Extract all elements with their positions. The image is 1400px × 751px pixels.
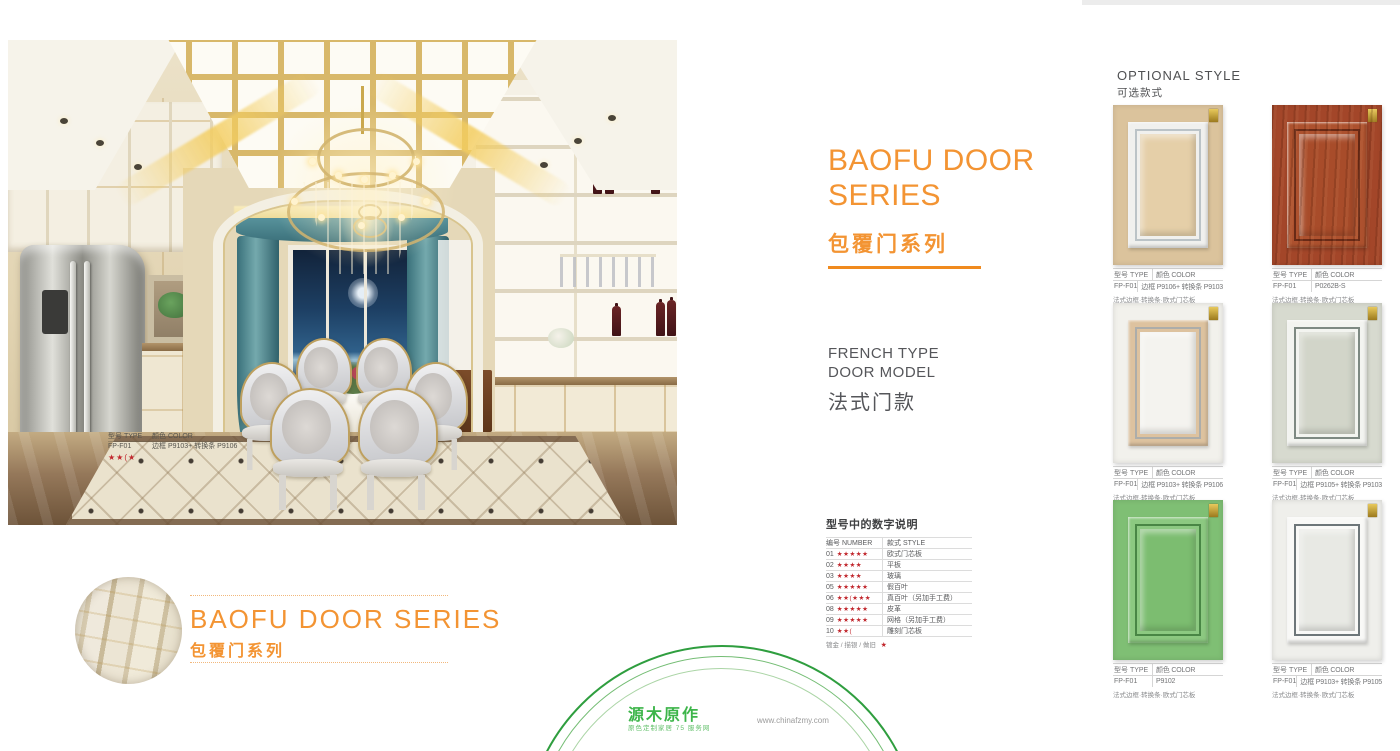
fridge-dispenser xyxy=(42,290,68,334)
door-style-card: 型号 TYPE 颜色 COLOR FP-F01 P0262B-S 法式边框·转换… xyxy=(1272,105,1382,304)
spotlight xyxy=(608,115,616,121)
spec-model: FP-F01 xyxy=(1113,479,1138,490)
spotlight xyxy=(574,138,582,144)
legend-stars: ★★★★★ xyxy=(837,605,869,613)
dotted-line xyxy=(190,595,448,596)
legend-row: 06★★(★★★ 真百叶（另加手工费） xyxy=(826,592,972,603)
spec-type-label: 型号 TYPE xyxy=(1272,269,1312,280)
spec-color-label: 颜色 COLOR xyxy=(152,432,243,441)
spec-value-row: FP-F01 边框 P9103+ 转换条 P9106 xyxy=(1113,478,1223,490)
chair-cushion xyxy=(364,347,397,387)
door-style-card: 型号 TYPE 颜色 COLOR FP-F01 边框 P9103+ 转换条 P9… xyxy=(1113,303,1223,502)
legend-style: 皮革 xyxy=(883,604,972,614)
wine-bottle xyxy=(667,300,676,336)
spec-color-value: 边框 P9103+ 转换条 P9106 xyxy=(152,442,243,451)
spec-model: FP-F01 xyxy=(1272,281,1312,292)
spec-model: FP-F01 xyxy=(108,442,152,451)
chair-legs xyxy=(367,475,425,510)
legend-num: 05 xyxy=(826,584,834,591)
door-center-panel xyxy=(1140,332,1196,434)
spotlight xyxy=(60,118,68,124)
spec-color-label: 颜色 COLOR xyxy=(1312,665,1382,675)
brand-website: www.chinafzmy.com xyxy=(757,716,829,725)
spec-type-label: 型号 TYPE xyxy=(1272,664,1312,675)
brand-emblem-icon xyxy=(1209,504,1218,517)
legend-style: 玻璃 xyxy=(883,571,972,581)
legend-stars: ★★★★★ xyxy=(837,583,869,591)
door-spec-table: 型号 TYPE 颜色 COLOR FP-F01 边框 P9105+ 转换条 P9… xyxy=(1272,466,1382,502)
door-spec-table: 型号 TYPE 颜色 COLOR FP-F01 边框 P9103+ 转换条 P9… xyxy=(1272,663,1382,699)
spec-stars: ★★(★ xyxy=(108,453,243,462)
brand-emblem-icon xyxy=(1209,109,1218,122)
spec-color-value: P0262B-S xyxy=(1312,283,1382,290)
chandelier-light xyxy=(389,172,396,179)
spec-type-label: 型号 TYPE xyxy=(1113,664,1153,675)
spec-color-label: 颜色 COLOR xyxy=(1153,468,1223,478)
door-style-card: 型号 TYPE 颜色 COLOR FP-F01 边框 P9105+ 转换条 P9… xyxy=(1272,303,1382,502)
series-title-line2: SERIES xyxy=(828,178,1035,213)
spec-header-row: 型号 TYPE 颜色 COLOR xyxy=(1113,268,1223,280)
legend-title: 型号中的数字说明 xyxy=(826,516,972,532)
spec-color-label: 颜色 COLOR xyxy=(1153,665,1223,675)
legend-style: 欧式门芯板 xyxy=(883,549,972,559)
model-type-cn: 法式门款 xyxy=(828,386,916,415)
chair-cushion xyxy=(304,347,337,387)
legend-stars: ★★★★ xyxy=(837,561,862,569)
door-style-card: 型号 TYPE 颜色 COLOR FP-F01 P9102 法式边框·转换条·欧… xyxy=(1113,500,1223,699)
chandelier-light xyxy=(358,222,365,229)
series-title-line1: BAOFU DOOR xyxy=(828,143,1035,178)
legend-num: 01 xyxy=(826,551,834,558)
dining-room-photo: 型号 TYPE 颜色 COLOR FP-F01 边框 P9103+ 转换条 P9… xyxy=(8,40,677,525)
door-spec-table: 型号 TYPE 颜色 COLOR FP-F01 边框 P9106+ 转换条 P9… xyxy=(1113,268,1223,304)
legend-style: 真百叶（另加手工费） xyxy=(883,593,972,603)
door-spec-table: 型号 TYPE 颜色 COLOR FP-F01 P9102 法式边框·转换条·欧… xyxy=(1113,663,1223,699)
legend-style: 假百叶 xyxy=(883,582,972,592)
chair-cushion xyxy=(282,400,331,454)
spec-value-row: FP-F01 边框 P9103+ 转换条 P9106 xyxy=(108,442,243,451)
spec-type-label: 型号 TYPE xyxy=(108,432,152,441)
legend-row: 01★★★★★ 欧式门芯板 xyxy=(826,548,972,559)
photo-spec-label: 型号 TYPE 颜色 COLOR FP-F01 边框 P9103+ 转换条 P9… xyxy=(108,432,243,462)
optional-style-title: OPTIONAL STYLE xyxy=(1117,68,1241,83)
legend-stars: ★★★★★ xyxy=(837,550,869,558)
page-edge-strip xyxy=(1082,0,1400,5)
series-badge-photo xyxy=(75,577,182,684)
chandelier-light xyxy=(413,158,420,165)
hanging-stemware xyxy=(560,254,656,287)
door-center-panel xyxy=(1299,529,1355,631)
brand-emblem-icon xyxy=(1209,307,1218,320)
brand-emblem-icon xyxy=(1368,504,1377,517)
optional-style-title-cn: 可选款式 xyxy=(1117,85,1163,100)
accent-rule xyxy=(828,266,981,269)
legend-table: 编号 NUMBER 款式 STYLE 01★★★★★ 欧式门芯板 02★★★★ … xyxy=(826,537,972,637)
spec-desc: 法式边框·转换条·欧式门芯板 xyxy=(1113,689,1223,699)
spec-model: FP-F01 xyxy=(1113,281,1138,292)
spec-color-value: 边框 P9103+ 转换条 P9106 xyxy=(1138,480,1223,490)
legend-row: 02★★★★ 平板 xyxy=(826,559,972,570)
door-center-panel xyxy=(1299,332,1355,434)
door-spec-table: 型号 TYPE 颜色 COLOR FP-F01 P0262B-S 法式边框·转换… xyxy=(1272,268,1382,304)
door-center-panel xyxy=(1299,134,1355,236)
spec-value-row: FP-F01 边框 P9105+ 转换条 P9103 xyxy=(1272,478,1382,490)
door-style-card: 型号 TYPE 颜色 COLOR FP-F01 边框 P9103+ 转换条 P9… xyxy=(1272,500,1382,699)
spec-value-row: FP-F01 P0262B-S xyxy=(1272,280,1382,292)
legend-footnote-star: ★ xyxy=(881,642,888,649)
spec-desc: 法式边框·转换条·欧式门芯板 xyxy=(1272,689,1382,699)
door-center-panel xyxy=(1140,529,1196,631)
spec-header-row: 型号 TYPE 颜色 COLOR xyxy=(108,432,243,442)
footer-series-subtitle: 包覆门系列 xyxy=(190,637,285,661)
legend-stars: ★★(★★★ xyxy=(837,594,871,602)
brand-tagline: 原色定制家居 75 服务网 xyxy=(628,722,710,732)
footer-series-title: BAOFU DOOR SERIES xyxy=(190,604,501,635)
dining-chair xyxy=(270,388,346,510)
model-number-legend: 型号中的数字说明 编号 NUMBER 款式 STYLE 01★★★★★ 欧式门芯… xyxy=(826,516,972,649)
legend-footnote: 镀金 / 描银 / 做旧 ★ xyxy=(826,639,972,649)
chair-cushion xyxy=(370,400,419,454)
crystal-chandelier xyxy=(263,86,463,284)
series-title: BAOFU DOOR SERIES xyxy=(828,143,1035,213)
legend-num: 03 xyxy=(826,573,834,580)
chandelier-light xyxy=(335,172,342,179)
legend-stars: ★★( xyxy=(837,627,852,635)
spec-value-row: FP-F01 边框 P9103+ 转换条 P9105 xyxy=(1272,675,1382,687)
spec-header-row: 型号 TYPE 颜色 COLOR xyxy=(1272,663,1382,675)
catalog-page: 型号 TYPE 颜色 COLOR FP-F01 边框 P9103+ 转换条 P9… xyxy=(0,0,1400,751)
spec-header-row: 型号 TYPE 颜色 COLOR xyxy=(1113,663,1223,675)
door-swatch xyxy=(1272,303,1382,463)
wine-bottle xyxy=(656,302,665,336)
legend-num: 02 xyxy=(826,562,834,569)
spec-header-row: 型号 TYPE 颜色 COLOR xyxy=(1272,466,1382,478)
door-swatch xyxy=(1113,500,1223,660)
spotlight xyxy=(540,162,548,168)
chandelier-light xyxy=(318,214,325,221)
door-style-card: 型号 TYPE 颜色 COLOR FP-F01 边框 P9106+ 转换条 P9… xyxy=(1113,105,1223,304)
spec-color-value: 边框 P9106+ 转换条 P9103 xyxy=(1138,282,1223,292)
chandelier-stem xyxy=(361,86,364,134)
chandelier-light xyxy=(423,198,430,205)
door-swatch xyxy=(1272,500,1382,660)
spec-type-label: 型号 TYPE xyxy=(1113,467,1153,478)
legend-stars: ★★★★ xyxy=(837,572,862,580)
model-type-line1: FRENCH TYPE xyxy=(828,344,939,363)
legend-num: 08 xyxy=(826,606,834,613)
spec-color-value: 边框 P9105+ 转换条 P9103 xyxy=(1297,480,1382,490)
legend-row: 09★★★★★ 网格（另加手工费） xyxy=(826,614,972,625)
wine-bottle xyxy=(612,306,621,336)
series-subtitle-cn: 包覆门系列 xyxy=(828,228,948,258)
legend-row: 10★★( 雕刻门芯板 xyxy=(826,625,972,636)
spotlight xyxy=(134,164,142,170)
spec-value-row: FP-F01 边框 P9106+ 转换条 P9103 xyxy=(1113,280,1223,292)
brand-emblem-icon xyxy=(1368,307,1377,320)
chandelier-light xyxy=(291,198,298,205)
legend-row: 08★★★★★ 皮革 xyxy=(826,603,972,614)
spec-type-label: 型号 TYPE xyxy=(1113,269,1153,280)
spec-model: FP-F01 xyxy=(1272,479,1297,490)
chandelier-light xyxy=(309,158,316,165)
chair-legs xyxy=(279,475,337,510)
legend-header-row: 编号 NUMBER 款式 STYLE xyxy=(826,537,972,548)
door-spec-table: 型号 TYPE 颜色 COLOR FP-F01 边框 P9103+ 转换条 P9… xyxy=(1113,466,1223,502)
legend-style: 网格（另加手工费） xyxy=(883,615,972,625)
door-center-panel xyxy=(1140,134,1196,236)
legend-num: 06 xyxy=(826,595,834,602)
dotted-line xyxy=(190,662,448,663)
spec-value-row: FP-F01 P9102 xyxy=(1113,675,1223,687)
spec-color-label: 颜色 COLOR xyxy=(1153,270,1223,280)
legend-col-number: 编号 NUMBER xyxy=(826,538,883,548)
legend-style: 平板 xyxy=(883,560,972,570)
legend-footnote-text: 镀金 / 描银 / 做旧 xyxy=(826,642,878,649)
model-type-title: FRENCH TYPE DOOR MODEL xyxy=(828,344,939,382)
spec-color-label: 颜色 COLOR xyxy=(1312,270,1382,280)
counter-flowers xyxy=(548,328,574,348)
spec-model: FP-F01 xyxy=(1272,676,1297,687)
brand-emblem-icon xyxy=(1368,109,1377,122)
legend-row: 03★★★★ 玻璃 xyxy=(826,570,972,581)
legend-col-style: 款式 STYLE xyxy=(883,538,972,548)
spec-color-value: P9102 xyxy=(1153,678,1223,685)
legend-stars: ★★★★★ xyxy=(837,616,869,624)
spec-model: FP-F01 xyxy=(1113,676,1153,687)
spec-header-row: 型号 TYPE 颜色 COLOR xyxy=(1272,268,1382,280)
model-type-line2: DOOR MODEL xyxy=(828,363,939,382)
spec-type-label: 型号 TYPE xyxy=(1272,467,1312,478)
door-swatch xyxy=(1113,105,1223,265)
spotlight xyxy=(96,140,104,146)
chandelier-light xyxy=(361,176,368,183)
legend-style: 雕刻门芯板 xyxy=(883,626,972,636)
door-swatch xyxy=(1272,105,1382,265)
legend-row: 05★★★★★ 假百叶 xyxy=(826,581,972,592)
legend-num: 10 xyxy=(826,628,834,635)
spec-color-label: 颜色 COLOR xyxy=(1312,468,1382,478)
legend-num: 09 xyxy=(826,617,834,624)
door-swatch xyxy=(1113,303,1223,463)
chandelier-light xyxy=(398,214,405,221)
spec-color-value: 边框 P9103+ 转换条 P9105 xyxy=(1297,677,1382,687)
spec-header-row: 型号 TYPE 颜色 COLOR xyxy=(1113,466,1223,478)
dining-chair xyxy=(358,388,434,510)
